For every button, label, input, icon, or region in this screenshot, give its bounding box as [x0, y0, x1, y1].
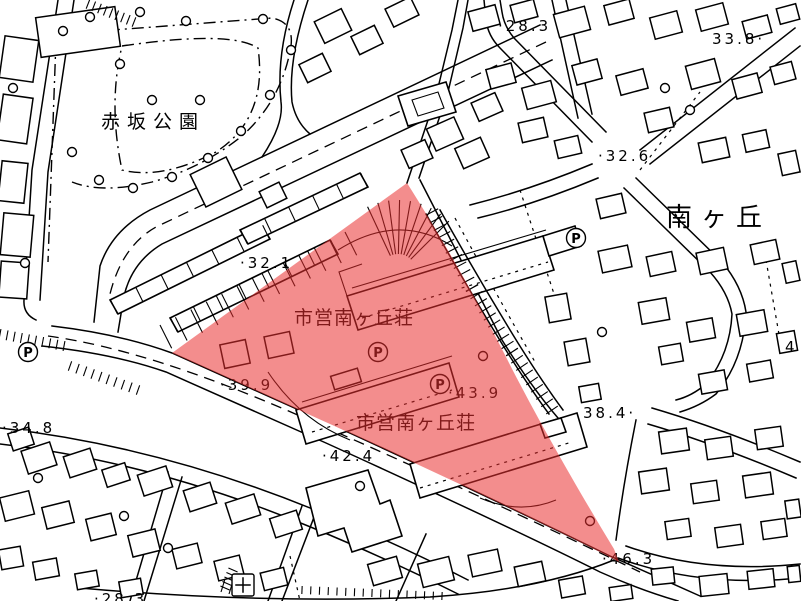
building-footprint: [468, 5, 500, 32]
building-footprint: [572, 59, 602, 85]
building-footprint: [698, 137, 730, 162]
map-circle: [686, 106, 695, 115]
map-circle: [95, 176, 104, 185]
building-footprint: [0, 546, 24, 570]
district-label: 南ヶ丘: [666, 203, 771, 233]
building-footprint: [686, 318, 715, 342]
building-footprint: [418, 556, 455, 587]
building-footprint: [650, 11, 683, 39]
map-circle: [266, 91, 275, 100]
building-footprint: [685, 59, 720, 90]
building-footprint: [36, 7, 121, 58]
building-footprint: [522, 80, 557, 109]
hatch-tick: [86, 0, 90, 9]
building-footprint: [750, 240, 780, 265]
spot-elevation: 33.8·: [712, 30, 765, 48]
building-footprint: [75, 570, 99, 590]
map-circle: [9, 84, 18, 93]
building-footprint: [471, 93, 503, 122]
spot-elevation: ·28.3: [498, 17, 551, 35]
spot-elevation: 38.4·: [583, 404, 636, 422]
map-circle: [182, 17, 191, 26]
building-footprint: [553, 6, 590, 37]
map-circle: [129, 184, 138, 193]
building-footprint: [314, 9, 351, 44]
hatch-tick: [160, 325, 172, 348]
spot-elevation: ·32.1: [240, 254, 293, 272]
building-footprint: [755, 426, 784, 449]
building-footprint: [260, 567, 288, 590]
hatch-tick: [83, 367, 86, 376]
map-circle: [164, 544, 173, 553]
building-footprint: [638, 298, 669, 325]
building-footprint: [579, 383, 601, 402]
building-footprint: [554, 136, 581, 159]
hatch-tick: [114, 377, 117, 386]
building-footprint: [486, 63, 516, 89]
hatch-tick: [68, 361, 71, 370]
map-circle: [21, 259, 30, 268]
building-footprint: [659, 428, 690, 454]
building-footprint: [183, 482, 216, 512]
hatch-tick: [91, 369, 94, 378]
spot-elevation-clipped: 4: [785, 338, 798, 356]
building-footprint: [190, 157, 242, 207]
building-footprint: [545, 293, 571, 322]
map-viewport[interactable]: P P P P 赤坂公園 南ヶ丘 市営南ヶ丘荘 市営南ヶ: [0, 0, 801, 601]
map-circle: [148, 96, 157, 105]
hatch-tick: [121, 13, 125, 22]
building-footprint: [598, 245, 632, 273]
hatch-tick: [546, 406, 558, 414]
parking-icon: P: [19, 343, 38, 362]
spot-elevation-clipped: ·28.3: [94, 590, 147, 601]
hatch-tick: [106, 375, 109, 384]
map-circle: [661, 84, 670, 93]
building-footprint: [787, 565, 801, 582]
building-footprint: [646, 252, 676, 277]
map-circle: [204, 154, 213, 163]
map-circle: [598, 328, 607, 337]
building-footprint: [86, 513, 117, 541]
building-footprint: [696, 247, 728, 274]
building-footprint: [401, 140, 433, 169]
building-footprint: [351, 25, 383, 54]
park-west-boundary: [48, 40, 56, 262]
building-footprint: [696, 3, 729, 31]
building-footprint: [0, 94, 33, 144]
building-footprint: [616, 69, 648, 96]
map-circle: [196, 96, 205, 105]
building-footprint: [0, 213, 34, 257]
building-footprint: [385, 0, 419, 27]
building-footprint: [0, 36, 39, 82]
building-footprint: [665, 518, 691, 539]
spot-elevation: ·32.6: [598, 147, 651, 165]
large-building: [306, 470, 402, 552]
building-footprint: [651, 567, 675, 585]
building-footprint: [742, 130, 769, 153]
map-circle: [59, 27, 68, 36]
map-circle: [168, 173, 177, 182]
building-footprint: [782, 261, 800, 283]
map-circle: [356, 482, 365, 491]
building-footprint: [699, 574, 729, 597]
building-footprint: [698, 370, 727, 394]
building-footprint: [368, 556, 403, 585]
building-footprint: [225, 494, 260, 524]
building-footprint: [426, 117, 463, 151]
map-circle: [136, 8, 145, 17]
map-circle: [68, 148, 77, 157]
building-footprint: [691, 480, 720, 503]
building-footprint: [468, 549, 502, 577]
hatch-tick: [121, 380, 124, 389]
hatch-tick: [126, 15, 130, 24]
park-field-outline: [115, 38, 260, 172]
building-footprint: [172, 543, 202, 569]
building-footprint: [128, 529, 160, 557]
building-footprint: [736, 310, 767, 337]
building-footprint: [518, 117, 548, 142]
building-footprint: [609, 585, 633, 601]
parking-icon: P: [567, 229, 586, 248]
building-footprint: [776, 4, 799, 25]
spot-elevation: ·42.4: [322, 447, 375, 465]
building-footprint: [659, 343, 684, 365]
hatch-tick: [129, 383, 132, 392]
park-label: 赤坂公園: [101, 111, 205, 133]
map-circle: [116, 60, 125, 69]
building-footprint: [747, 360, 774, 382]
hatch-tick: [35, 336, 37, 346]
hatch-tick: [136, 385, 139, 394]
building-footprint: [270, 510, 303, 538]
building-footprint: [761, 518, 787, 539]
hatch-tick: [13, 332, 15, 342]
spot-elevation: ·34.8: [2, 419, 55, 437]
building-footprint: [455, 137, 490, 168]
building-footprint: [559, 576, 586, 598]
map-circle: [287, 46, 296, 55]
hatch-tick: [132, 17, 136, 26]
hatch-tick: [20, 333, 22, 343]
building-footprint: [705, 436, 734, 459]
city-plan-map[interactable]: P P P P 赤坂公園 南ヶ丘 市営南ヶ丘荘 市営南ヶ: [0, 0, 801, 601]
building-footprint: [644, 107, 674, 132]
parking-letter: P: [571, 232, 581, 247]
building-footprint: [770, 61, 796, 84]
hatch-tick: [76, 364, 79, 373]
hatch-tick: [99, 372, 102, 381]
map-circle: [86, 13, 95, 22]
building-footprint: [715, 524, 744, 547]
building-footprint: [604, 0, 634, 25]
public-facility-cross-icon: [232, 574, 254, 596]
building-footprint: [747, 569, 775, 590]
hatch-tick: [0, 329, 1, 339]
building-footprint: [42, 501, 74, 529]
map-circle: [259, 15, 268, 24]
building-footprint: [778, 150, 800, 175]
building-footprint: [63, 448, 96, 478]
hatch-tick: [6, 330, 8, 340]
building-footprint: [564, 338, 590, 365]
parking-letter: P: [23, 346, 33, 361]
map-circle: [34, 474, 43, 483]
building-footprint: [0, 491, 34, 522]
map-circle: [120, 512, 129, 521]
building-footprint: [639, 468, 670, 494]
building-footprint: [785, 499, 801, 519]
building-footprint: [259, 182, 287, 208]
building-footprint: [102, 463, 130, 488]
building-footprint: [299, 53, 331, 82]
building-footprint: [596, 193, 626, 218]
building-footprint: [743, 472, 774, 498]
map-circle: [237, 127, 246, 136]
building-footprint: [0, 161, 28, 203]
building-footprint: [732, 73, 762, 99]
building-footprint: [33, 558, 60, 580]
